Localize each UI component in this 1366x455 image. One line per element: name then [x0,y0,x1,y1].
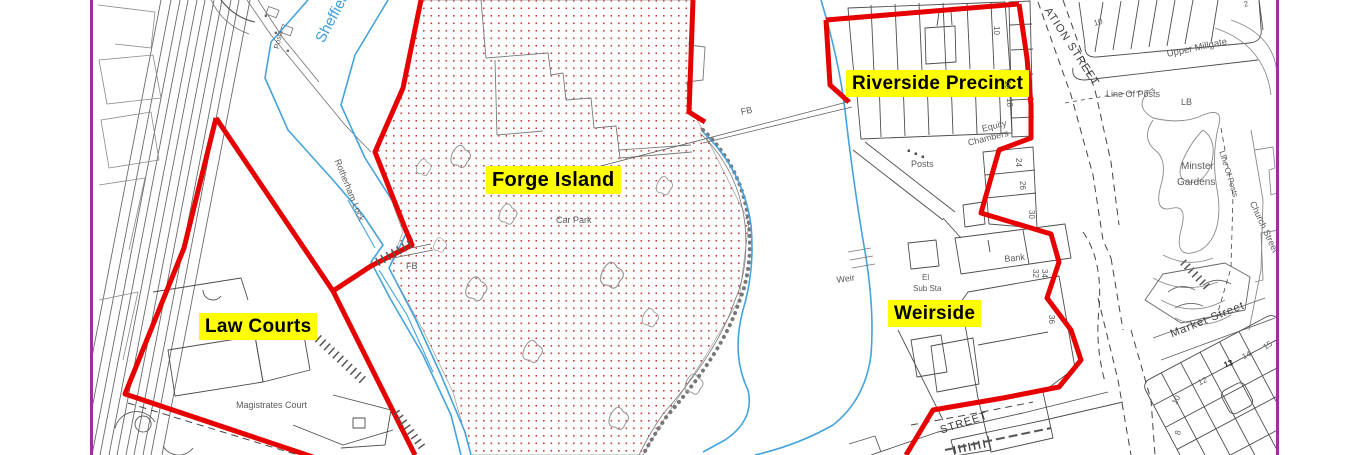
fb-lock-label: FB [406,262,418,271]
posts-label-precinct: Posts [911,160,934,169]
street-dashes [945,428,1051,450]
gardens-label: Gardens [1177,178,1215,188]
forge-island-label: Forge Island [486,166,621,194]
map-frame: Sheffield Posts Rotherham Lock Forge Isl… [90,0,1279,455]
plot-number: 26 [1018,181,1026,190]
minster-label: Minster [1181,162,1214,172]
weirside-label: Weirside [888,300,981,327]
plot-number: 36 [1047,315,1055,324]
plot-number: 34 [1040,269,1048,278]
magistrates-court-label: Magistrates Court [236,401,307,410]
weir-marks [848,248,875,268]
sub-sta-label: Sub Sta [913,285,941,293]
law-courts-label: Law Courts [199,313,317,340]
plot-number: 18 [1005,98,1013,107]
plot-number: 32 [1031,269,1039,278]
law-courts-buildings [153,278,393,448]
millgate-block [1073,0,1263,80]
lb-label: LB [1181,98,1192,107]
precinct-buildings [848,1,1037,238]
railway-tracks [93,0,250,455]
plot-number: 16 [1003,80,1011,89]
riverside-precinct-label: Riverside Precinct [846,70,1029,97]
car-park-label: Car Park [556,216,592,225]
market-grid [1142,313,1276,455]
plot-number: 30 [1027,210,1035,219]
plot-number: 10 [992,26,1000,35]
map-screenshot: Sheffield Posts Rotherham Lock Forge Isl… [0,0,1366,455]
west-buildings [98,5,161,360]
map-linework [93,0,1276,455]
plot-number: 24 [1014,158,1022,167]
line-of-posts-label-1: Line Of Posts [1106,90,1160,99]
el-label: El [922,274,929,282]
